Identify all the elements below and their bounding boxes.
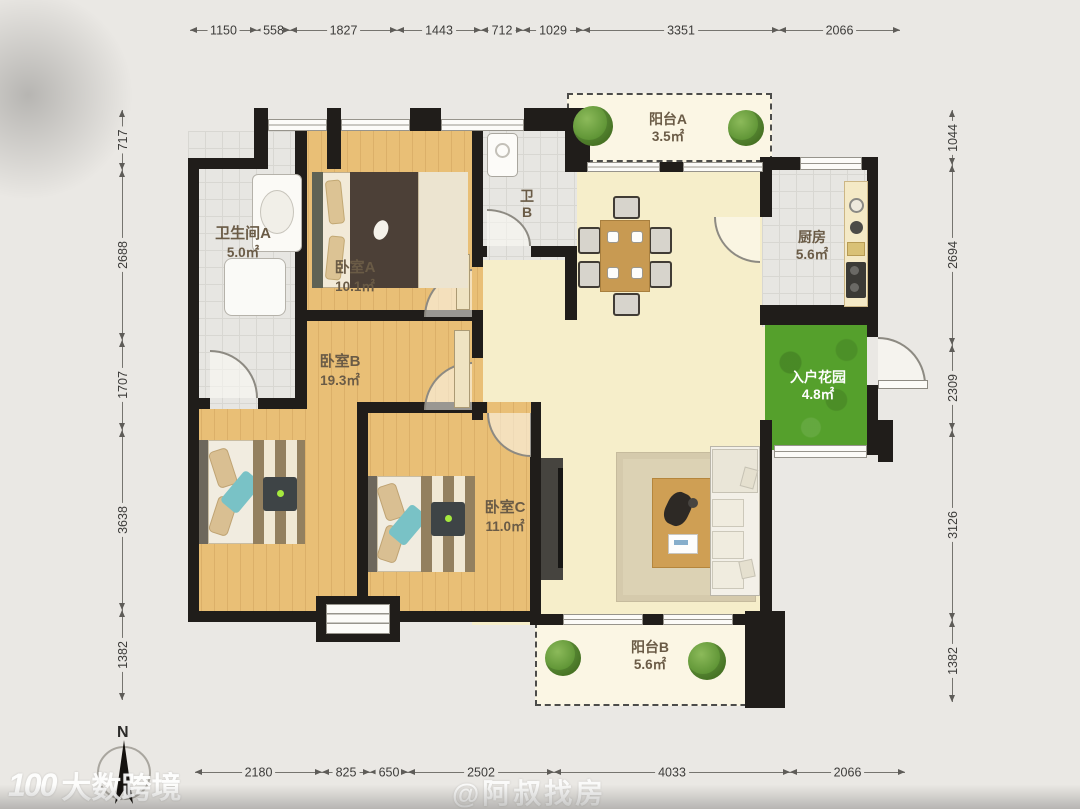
entry-door-leaf bbox=[878, 380, 928, 389]
dimension-right: 2309 bbox=[952, 345, 953, 430]
room-area: 5.0㎡ bbox=[188, 244, 298, 262]
room-area: 19.3㎡ bbox=[280, 372, 400, 390]
dimension-top: 1029 bbox=[523, 30, 583, 31]
dimension-right: 1382 bbox=[952, 620, 953, 702]
dimension-left: 3638 bbox=[122, 430, 123, 610]
dimension-top: 558 bbox=[257, 30, 290, 31]
wall-segment bbox=[643, 614, 663, 625]
dimension-top: 1443 bbox=[397, 30, 481, 31]
wall-segment bbox=[531, 402, 541, 413]
room-name: 厨房 bbox=[777, 228, 847, 246]
dining-chair bbox=[649, 261, 672, 288]
dimension-value: 2180 bbox=[242, 765, 276, 779]
room-label-bedroom-c: 卧室C11.0㎡ bbox=[455, 498, 555, 535]
room-name: 入户花园 bbox=[772, 368, 864, 386]
dimension-left: 717 bbox=[122, 110, 123, 170]
dimension-value: 1707 bbox=[116, 368, 130, 402]
room-name: 卫B bbox=[518, 188, 536, 220]
dimension-left: 1382 bbox=[122, 610, 123, 700]
bed-c-quilt-dot bbox=[445, 515, 452, 522]
kitchen-pot bbox=[850, 221, 863, 234]
dimension-top: 1827 bbox=[290, 30, 397, 31]
dining-chair bbox=[578, 261, 601, 288]
dining-chair bbox=[613, 196, 640, 219]
dimension-value: 1150 bbox=[207, 23, 240, 37]
dimension-top: 3351 bbox=[583, 30, 779, 31]
place-setting bbox=[607, 267, 619, 279]
dimension-right: 3126 bbox=[952, 430, 953, 620]
window bbox=[683, 162, 763, 172]
window bbox=[441, 119, 524, 131]
room-label-kitchen: 厨房5.6㎡ bbox=[777, 228, 847, 264]
wall-segment bbox=[760, 305, 878, 325]
dimension-value: 2309 bbox=[946, 371, 960, 405]
dimension-value: 2688 bbox=[116, 238, 130, 272]
dimension-top: 712 bbox=[481, 30, 523, 31]
place-setting bbox=[607, 231, 619, 243]
wall-segment bbox=[530, 614, 563, 625]
brand-watermark: 100 大数跨境 bbox=[8, 763, 181, 807]
room-name: 阳台A bbox=[613, 110, 723, 128]
wall-segment bbox=[745, 611, 785, 708]
sofa-cushion bbox=[712, 499, 744, 527]
floorplan-image: 卫生间A5.0㎡ 卧室A10.1㎡ 卧室B19.3㎡ 卧室C11.0㎡ 卫B 阳… bbox=[0, 0, 1080, 809]
dimension-top: 1150 bbox=[190, 30, 257, 31]
wall-segment bbox=[254, 108, 268, 169]
tv-screen bbox=[558, 468, 563, 568]
window bbox=[341, 119, 410, 131]
place-setting bbox=[631, 231, 643, 243]
room-area: 5.6㎡ bbox=[595, 656, 705, 674]
bed-a-foot-bench bbox=[418, 172, 468, 288]
room-name: 阳台B bbox=[595, 638, 705, 656]
dimension-bottom: 2180 bbox=[195, 772, 322, 773]
room-label-bathroom-a: 卫生间A5.0㎡ bbox=[188, 224, 298, 261]
room-area: 3.5㎡ bbox=[613, 128, 723, 146]
dimension-value: 712 bbox=[489, 23, 516, 37]
wall-segment bbox=[760, 420, 772, 625]
dimension-value: 1827 bbox=[327, 23, 361, 37]
plant bbox=[573, 106, 613, 146]
dimension-value: 4033 bbox=[655, 765, 689, 779]
dimension-left: 1707 bbox=[122, 340, 123, 430]
wall-segment bbox=[357, 402, 368, 622]
window bbox=[774, 445, 867, 458]
bed-b-quilt-dot bbox=[277, 490, 284, 497]
washing-machine-drum bbox=[495, 143, 510, 158]
brand-text: 大数跨境 bbox=[61, 763, 181, 807]
wall-segment bbox=[327, 108, 341, 169]
room-label-balcony-b: 阳台B5.6㎡ bbox=[595, 638, 705, 674]
place-setting bbox=[631, 267, 643, 279]
brand-logo: 100 bbox=[8, 767, 55, 804]
door-arc-entry bbox=[878, 337, 926, 385]
wall-segment bbox=[867, 385, 878, 455]
stove-burner bbox=[850, 283, 859, 292]
dimension-right: 2694 bbox=[952, 165, 953, 345]
dimension-value: 2694 bbox=[946, 238, 960, 272]
room-area: 5.6㎡ bbox=[777, 246, 847, 264]
dining-chair bbox=[649, 227, 672, 254]
room-label-balcony-a: 阳台A3.5㎡ bbox=[613, 110, 723, 146]
dimension-top: 2066 bbox=[779, 30, 900, 31]
room-name: 卫生间A bbox=[188, 224, 298, 244]
compass-north-label: N bbox=[117, 724, 129, 742]
dimension-value: 1382 bbox=[946, 644, 960, 678]
window bbox=[268, 119, 327, 131]
bedroom-b-door-leaf bbox=[454, 330, 470, 408]
wall-segment bbox=[258, 398, 307, 409]
dimension-value: 1029 bbox=[536, 23, 570, 37]
wall-segment bbox=[410, 108, 441, 131]
room-label-bedroom-b: 卧室B19.3㎡ bbox=[280, 352, 400, 389]
dining-chair bbox=[578, 227, 601, 254]
plant bbox=[545, 640, 581, 676]
wall-segment bbox=[188, 158, 260, 169]
kitchen-sink bbox=[849, 198, 864, 213]
room-label-bathroom-b: 卫B bbox=[518, 188, 536, 220]
dimension-value: 3638 bbox=[116, 503, 130, 537]
stove-burner bbox=[850, 266, 859, 275]
dimension-value: 717 bbox=[116, 127, 130, 154]
dimension-value: 3351 bbox=[664, 23, 698, 37]
room-area: 10.1㎡ bbox=[295, 278, 415, 296]
wall-segment bbox=[565, 162, 587, 172]
bed-b-headboard bbox=[199, 440, 208, 544]
window bbox=[663, 614, 733, 625]
dimension-value: 1382 bbox=[116, 638, 130, 672]
room-name: 卧室A bbox=[295, 258, 415, 278]
dimension-right: 1044 bbox=[952, 110, 953, 165]
bay-window bbox=[326, 604, 390, 634]
dimension-value: 558 bbox=[260, 23, 287, 37]
dimension-bottom: 650 bbox=[370, 772, 408, 773]
magazine-print bbox=[674, 540, 688, 545]
dimension-value: 2066 bbox=[831, 765, 865, 779]
kitchen-appliance bbox=[847, 242, 865, 256]
window bbox=[587, 162, 660, 172]
wall-segment bbox=[878, 420, 893, 462]
coffee-table-decor bbox=[688, 498, 698, 508]
bed-c-headboard bbox=[368, 476, 377, 572]
dimension-value: 650 bbox=[376, 765, 403, 779]
wall-segment bbox=[660, 162, 683, 172]
room-name: 卧室B bbox=[280, 352, 400, 372]
sofa-cushion bbox=[712, 531, 744, 559]
room-area: 11.0㎡ bbox=[455, 518, 555, 536]
wall-segment bbox=[188, 398, 210, 409]
dimension-value: 1443 bbox=[422, 23, 456, 37]
dimension-value: 2066 bbox=[823, 23, 857, 37]
bathtub bbox=[224, 258, 286, 316]
window bbox=[800, 157, 862, 170]
wall-segment bbox=[472, 246, 487, 257]
center-watermark: @阿叔找房 bbox=[452, 772, 606, 809]
room-name: 卧室C bbox=[455, 498, 555, 518]
dimension-left: 2688 bbox=[122, 170, 123, 340]
dining-chair bbox=[613, 293, 640, 316]
dimension-value: 3126 bbox=[946, 508, 960, 542]
dimension-bottom: 2066 bbox=[790, 772, 905, 773]
room-label-bedroom-a: 卧室A10.1㎡ bbox=[295, 258, 415, 295]
room-area: 4.8㎡ bbox=[772, 386, 864, 404]
window bbox=[563, 614, 643, 625]
dimension-bottom: 825 bbox=[322, 772, 370, 773]
room-label-entry-garden: 入户花园4.8㎡ bbox=[772, 368, 864, 404]
wall-segment bbox=[472, 317, 483, 358]
wall-segment bbox=[565, 246, 577, 320]
dimension-value: 825 bbox=[333, 765, 360, 779]
plant bbox=[728, 110, 764, 146]
dimension-value: 1044 bbox=[946, 121, 960, 155]
